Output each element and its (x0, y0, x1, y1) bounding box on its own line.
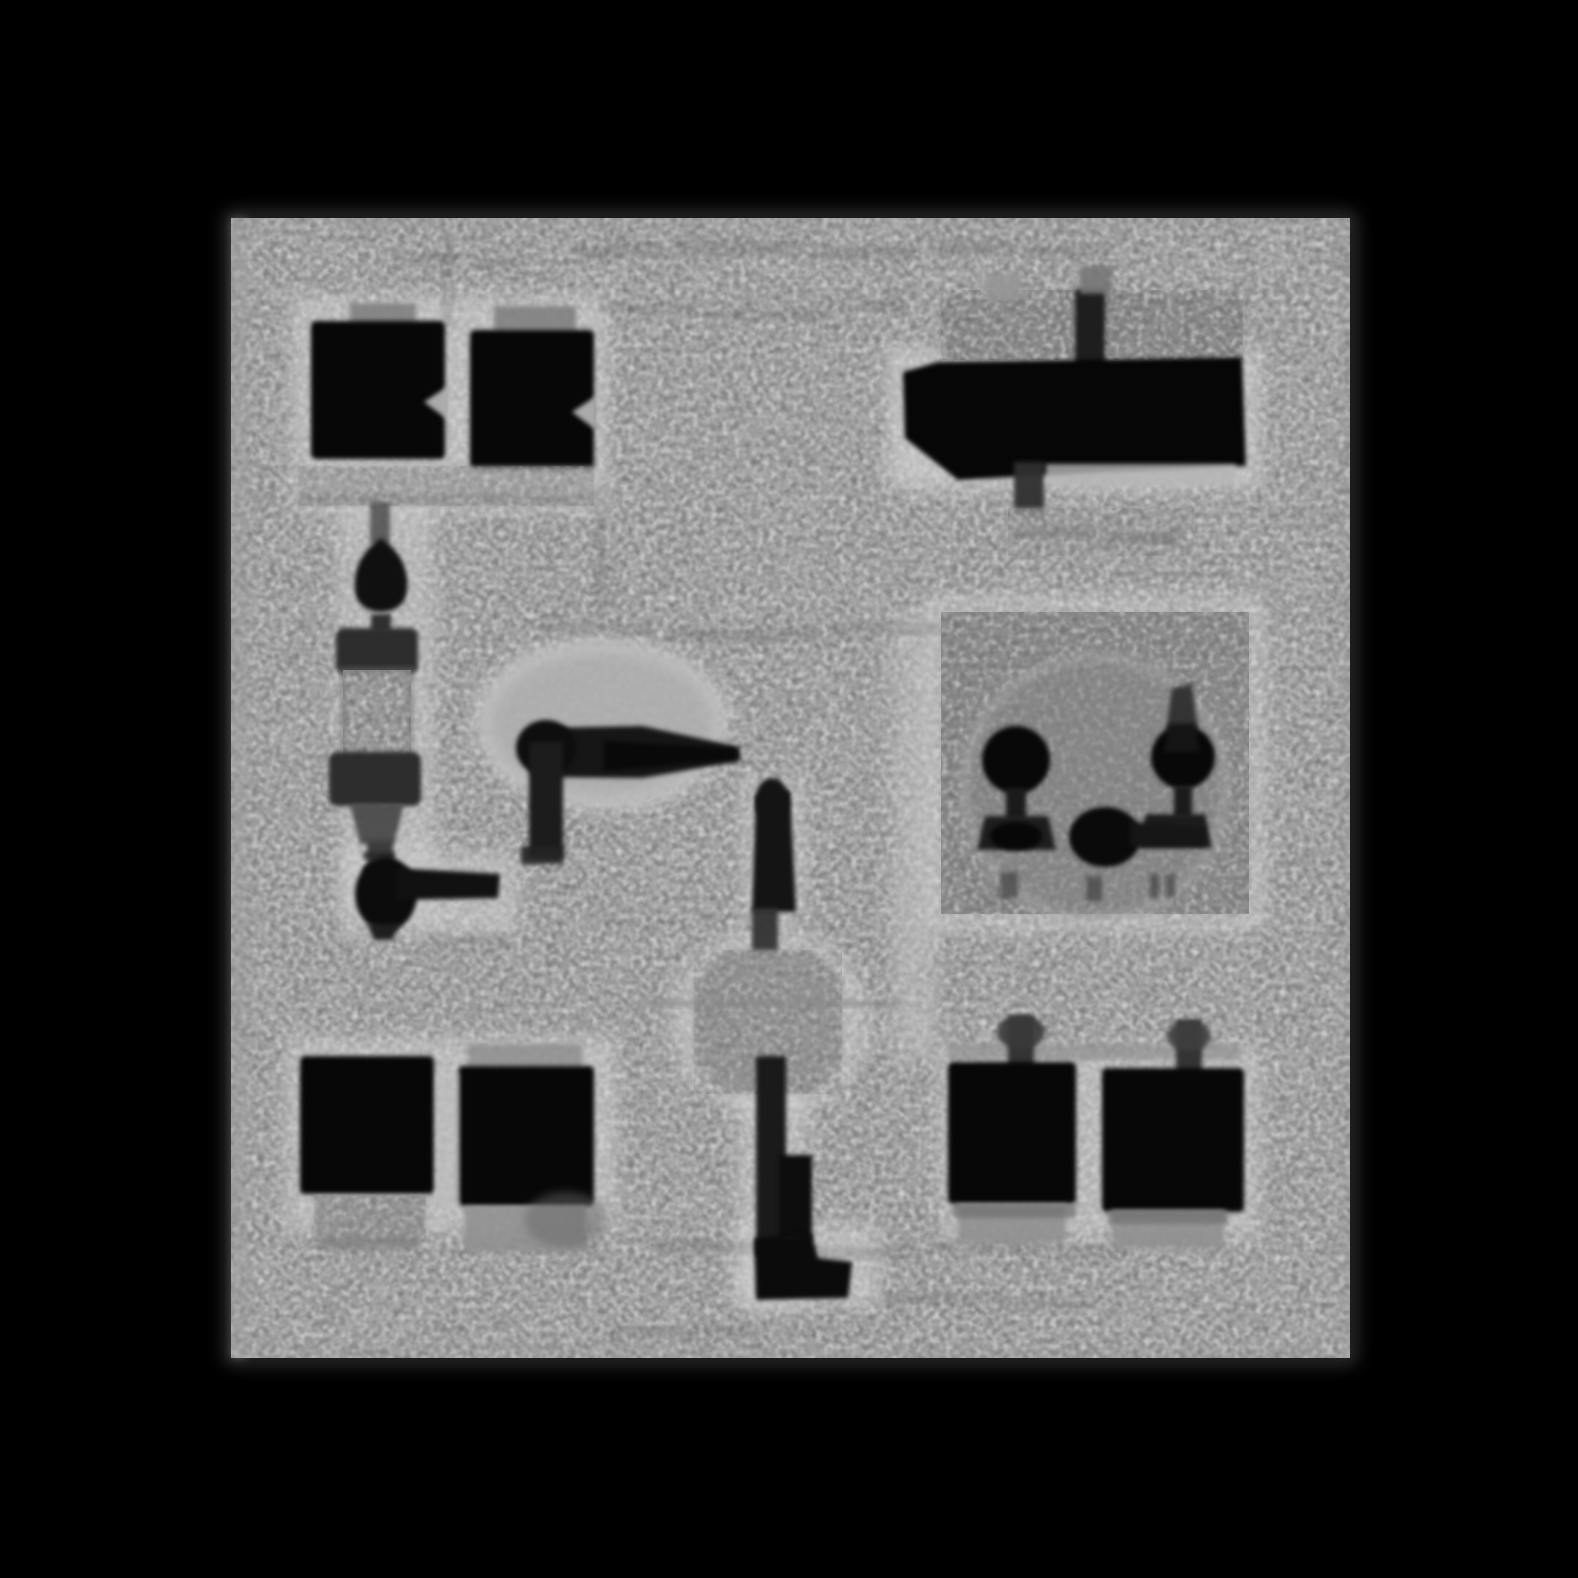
die-tick (1150, 874, 1159, 898)
etch-mark (430, 936, 510, 948)
axial-body-grain (343, 670, 411, 756)
bl-smudge (524, 1192, 608, 1248)
bl-pad2-cap (468, 1044, 582, 1068)
etch-mark (1016, 526, 1096, 538)
etch-mark (846, 300, 906, 312)
etch-mark (652, 1240, 772, 1254)
via-pad-seam (636, 1000, 904, 1007)
bl-pad1 (300, 1056, 434, 1194)
br-stem2-blob (1167, 1021, 1211, 1051)
substrate-left-streak (231, 218, 247, 1358)
xray-radiograph (0, 0, 1578, 1578)
etch-mark (545, 622, 655, 636)
br-stem1-blob (997, 1015, 1045, 1049)
tl-pad1 (311, 321, 445, 459)
tr-nub (985, 274, 1021, 300)
br-sub-pad1-shade (952, 1204, 1076, 1218)
etch-mark (1028, 246, 1108, 259)
center-trace-vertical (529, 742, 563, 858)
etch-mark (930, 240, 1016, 255)
center-trace-foot (521, 846, 563, 864)
etch-mark (572, 244, 662, 258)
tl-pad2 (470, 330, 594, 470)
etch-mark-vertical (594, 484, 606, 614)
etch-mark (884, 1292, 984, 1304)
etch-mark (996, 1296, 1092, 1308)
etch-mark (1058, 1246, 1118, 1258)
die-tick (1000, 872, 1018, 898)
tr-tab-divider (1075, 289, 1105, 367)
etch-mark (1104, 532, 1180, 544)
ball-bond-left-ball (982, 726, 1050, 794)
tl-link-bar-grain (298, 466, 594, 506)
light-strip-left-of-die (892, 612, 936, 1062)
die-tick (1086, 876, 1102, 901)
etch-mark (712, 308, 832, 321)
ball-bond-right-stem-top (1164, 724, 1200, 752)
bl-sub-pad1-shade (320, 1238, 420, 1250)
tl-pad2-cap (494, 306, 576, 332)
etch-mark (812, 246, 912, 259)
br-pad2 (1102, 1068, 1244, 1212)
etch-mark (608, 1326, 758, 1338)
bl-gap-strip (436, 1072, 460, 1208)
axial-lead-top (370, 502, 390, 544)
radiograph-frame (0, 0, 1578, 1578)
br-pad1 (948, 1062, 1076, 1204)
shapes-root (0, 0, 1578, 1578)
tr-nub (1080, 266, 1112, 294)
mid-trace-head (755, 778, 789, 824)
bl-sub-pad1-grain (314, 1196, 426, 1242)
bottom-trace-thick (779, 1155, 812, 1240)
bl-pad2 (458, 1066, 594, 1206)
etch-mark (676, 240, 796, 256)
ball-bond-left-base-core (990, 822, 1042, 850)
die-tick (1166, 874, 1175, 898)
etch-mark (830, 622, 940, 635)
etch-mark (600, 302, 696, 314)
etch-mark-vertical (442, 232, 454, 327)
br-sub-pad2-shade (1108, 1210, 1228, 1224)
tr-under-pad (1046, 464, 1236, 486)
ball-bond-left-stem (1006, 788, 1026, 820)
etch-mark (470, 258, 526, 268)
tr-terminal-bar (903, 357, 1246, 480)
ball-bond-right-stem-bottom (1174, 786, 1192, 818)
axial-cap-bottom (329, 752, 421, 806)
etch-mark (668, 628, 818, 643)
